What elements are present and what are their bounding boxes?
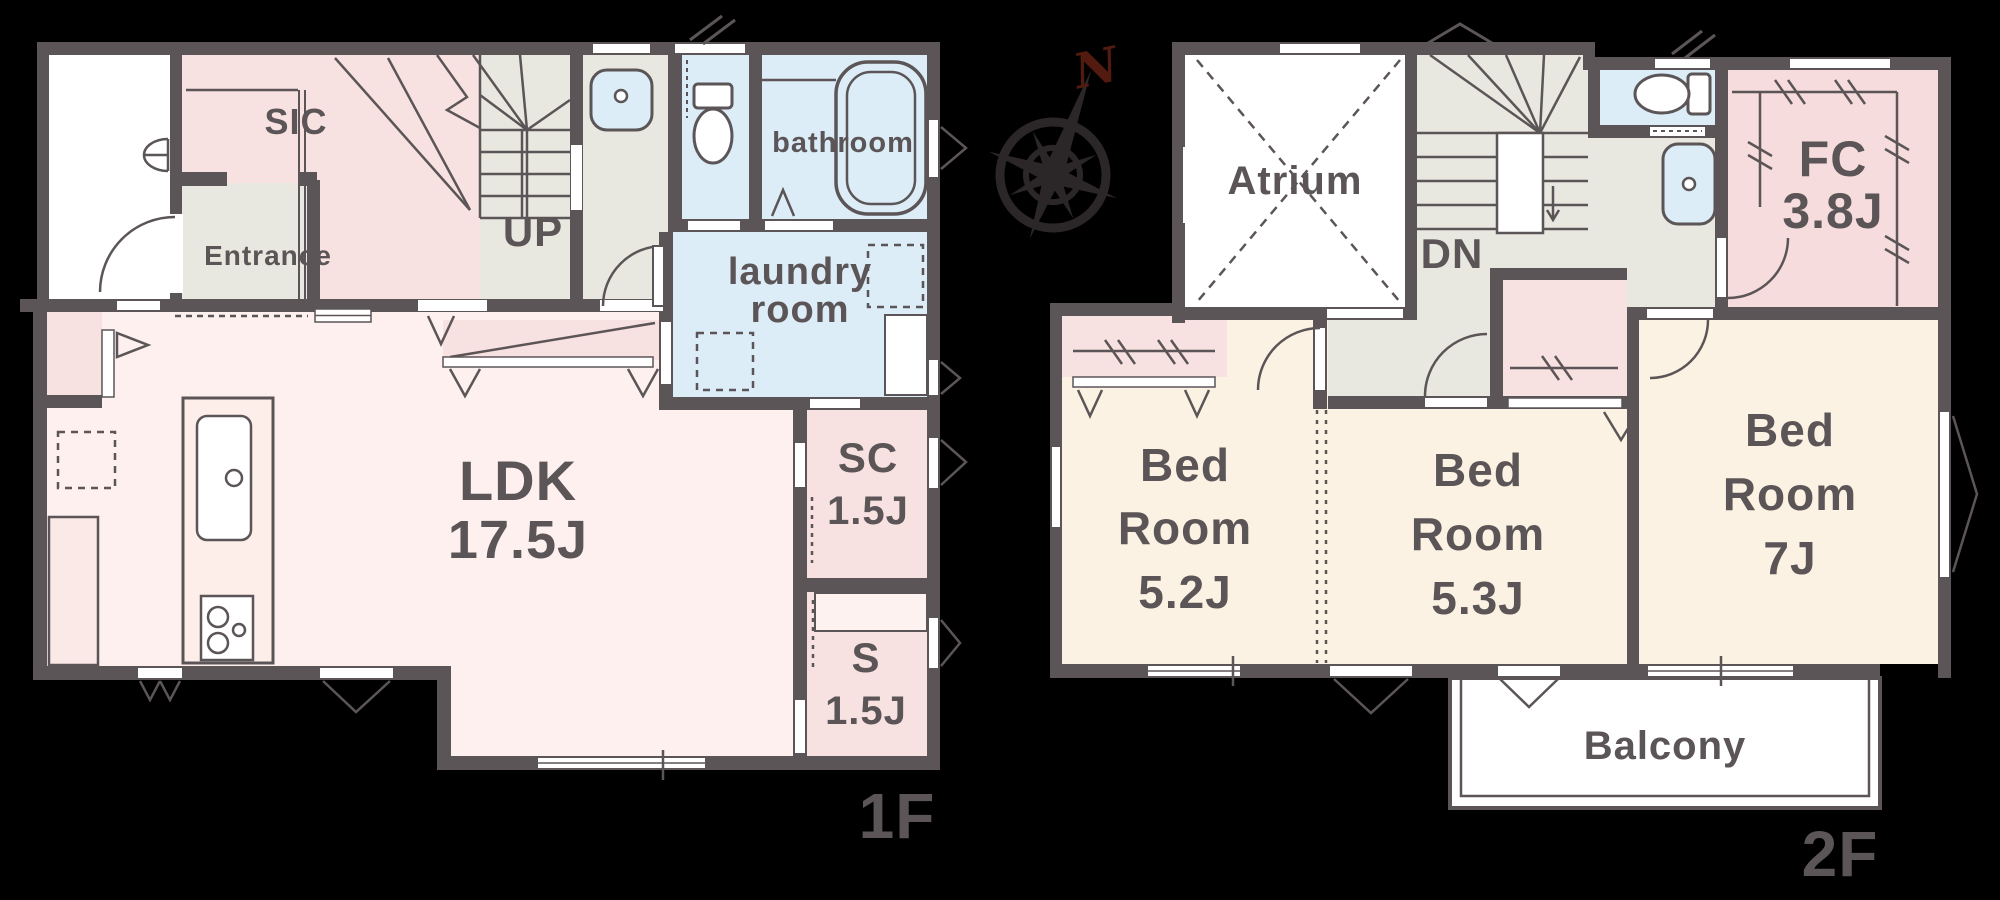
window-mark-bath <box>941 127 966 169</box>
label-bed3-l1: Bed <box>1745 404 1835 456</box>
label-bed2-l2: Room <box>1411 508 1545 560</box>
sink-icon-1f <box>591 70 652 130</box>
label-dn: DN <box>1421 230 1484 277</box>
label-laundry-1: laundry <box>728 251 872 293</box>
label-up: UP <box>503 208 563 255</box>
vent-mark-2f <box>1672 31 1715 58</box>
sink-icon-2f <box>1663 144 1715 224</box>
compass-north-label: N <box>1067 36 1126 101</box>
label-bed3-l2: Room <box>1723 468 1857 520</box>
stove-icon <box>201 596 253 660</box>
label-entrance: Entrance <box>204 240 332 271</box>
room-stairs-1f <box>480 55 570 299</box>
window-mark-s <box>941 620 960 666</box>
label-laundry-2: room <box>751 289 850 331</box>
label-bathroom: bathroom <box>772 127 914 159</box>
hall-2f-notch <box>1328 320 1417 396</box>
label-bed1-l3: 5.2J <box>1138 566 1232 618</box>
vent-mark-1f <box>690 16 735 44</box>
laundry-cabinet <box>885 315 927 395</box>
window-marks-ldk2 <box>323 681 390 712</box>
window-marks-ldk1 <box>140 681 180 700</box>
label-floor1: 1F <box>859 780 936 852</box>
label-bed1-l2: Room <box>1118 502 1252 554</box>
label-s-size: 1.5J <box>825 689 907 733</box>
label-bed2-l3: 5.3J <box>1431 572 1525 624</box>
label-sc: SC <box>838 434 898 481</box>
room-porch <box>49 55 170 299</box>
closet-ldk-left <box>47 312 102 395</box>
label-fc: FC <box>1799 131 1868 187</box>
s-shelf <box>815 593 927 631</box>
toilet-icon-2f <box>1635 74 1710 114</box>
vent-mark-stairs2f <box>1428 24 1492 43</box>
kitchen-counter <box>49 517 98 665</box>
window-mark-sc <box>941 440 966 485</box>
label-s: S <box>851 634 880 681</box>
window-mark-bedroom3 <box>1953 416 1977 572</box>
label-balcony: Balcony <box>1584 724 1747 768</box>
kitchen-faucet-icon <box>226 470 242 486</box>
label-fc-size: 3.8J <box>1782 183 1883 239</box>
label-sc-size: 1.5J <box>827 489 909 533</box>
compass-rose-icon: N <box>966 36 1155 262</box>
label-bed3-l3: 7J <box>1763 532 1816 584</box>
label-floor2: 2F <box>1802 818 1879 890</box>
label-ldk-size: 17.5J <box>448 510 588 570</box>
floorplan-canvas: N SIC Entrance UP bathroom laundry room … <box>0 0 2000 900</box>
floorplan-svg: N SIC Entrance UP bathroom laundry room … <box>0 0 2000 900</box>
toilet-icon-1f <box>694 84 732 163</box>
label-ldk: LDK <box>459 449 577 512</box>
sliding-door-hall-ldk <box>315 309 371 322</box>
label-bed1-l1: Bed <box>1140 439 1230 491</box>
closet-bedroom1 <box>1062 316 1227 377</box>
label-sic: SIC <box>264 101 327 142</box>
window-mark-laundry <box>941 362 960 394</box>
label-bed2-l1: Bed <box>1433 444 1523 496</box>
label-atrium: Atrium <box>1228 159 1363 203</box>
closet-bedroom2 <box>1503 268 1627 396</box>
